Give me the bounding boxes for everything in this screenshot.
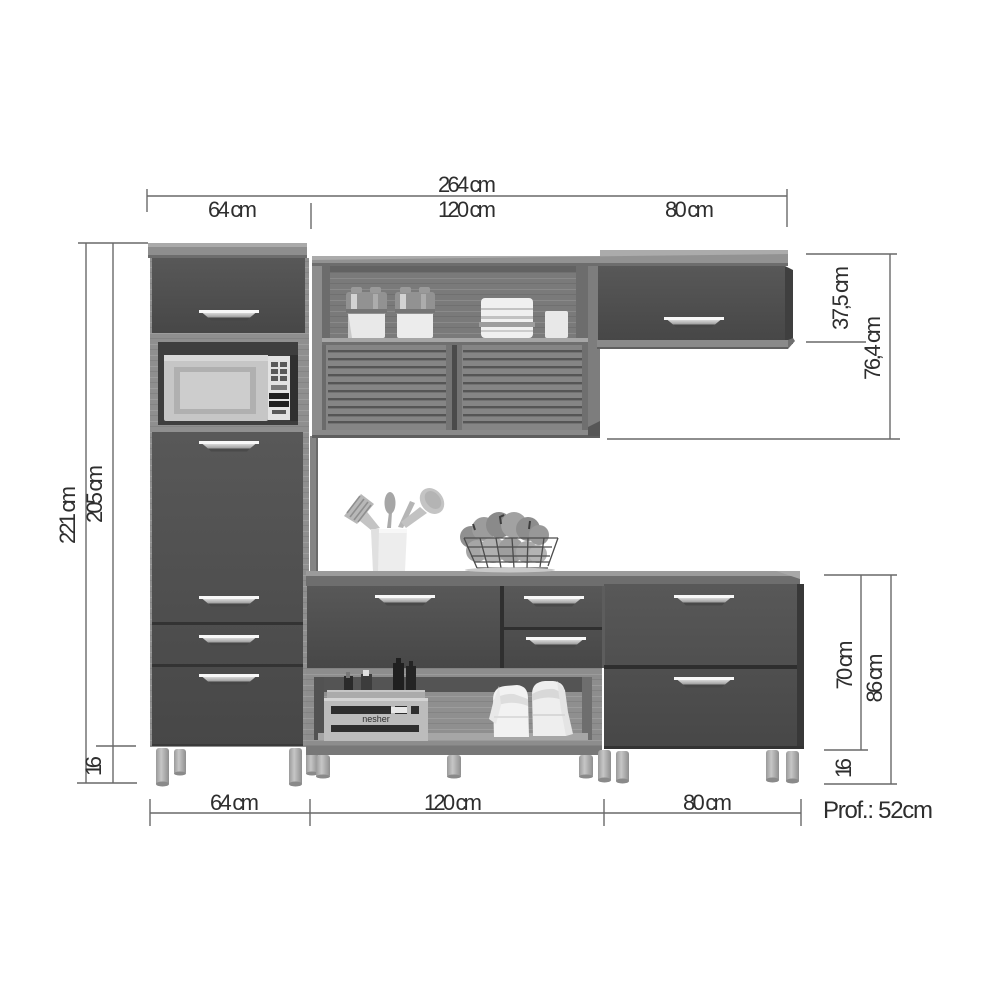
svg-text:221 cm: 221 cm xyxy=(55,486,80,544)
svg-text:Prof.: 52cm: Prof.: 52cm xyxy=(823,797,933,824)
svg-text:120 cm: 120 cm xyxy=(424,790,482,815)
svg-text:264 cm: 264 cm xyxy=(438,172,496,197)
svg-text:16: 16 xyxy=(81,756,106,776)
svg-text:16: 16 xyxy=(831,758,856,778)
svg-text:37,5 cm: 37,5 cm xyxy=(828,266,853,330)
svg-text:120 cm: 120 cm xyxy=(438,197,496,222)
svg-text:205 cm: 205 cm xyxy=(82,465,107,523)
svg-text:nesher: nesher xyxy=(362,714,390,724)
svg-text:86 cm: 86 cm xyxy=(862,654,887,703)
svg-text:80 cm: 80 cm xyxy=(665,197,714,222)
svg-text:80 cm: 80 cm xyxy=(683,790,732,815)
svg-text:70 cm: 70 cm xyxy=(832,641,857,690)
svg-text:64 cm: 64 cm xyxy=(210,790,259,815)
svg-text:76,4 cm: 76,4 cm xyxy=(860,316,885,380)
svg-text:64 cm: 64 cm xyxy=(208,197,257,222)
